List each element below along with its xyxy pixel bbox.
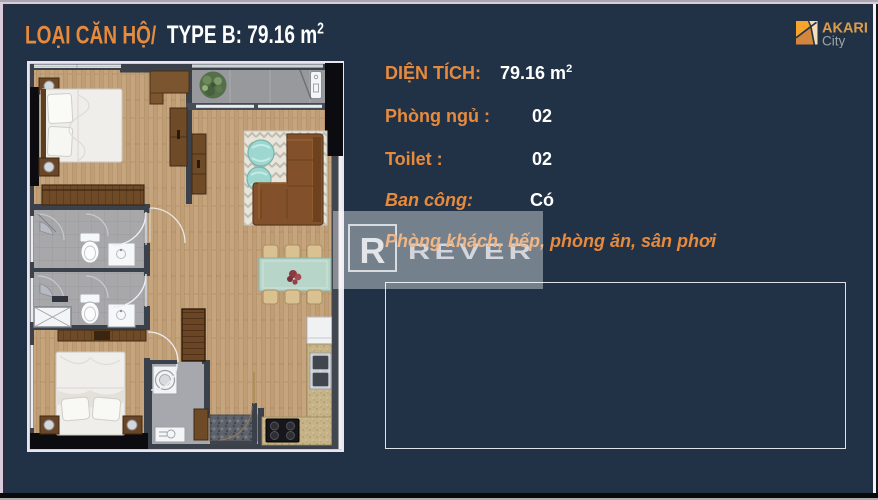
svg-text:City: City [822,34,845,49]
